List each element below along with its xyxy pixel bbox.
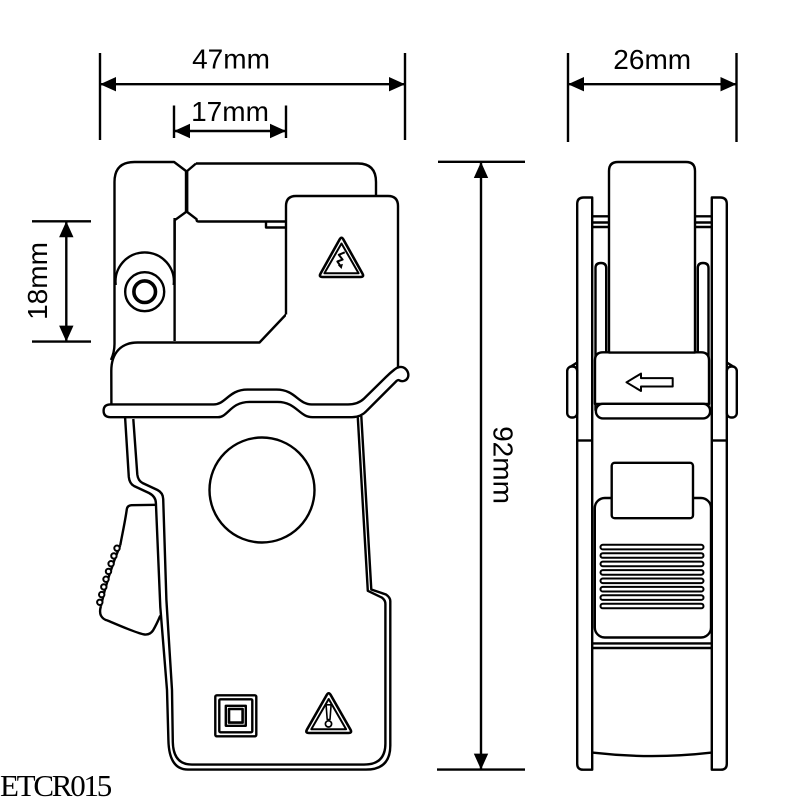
- svg-text:26mm: 26mm: [613, 44, 691, 75]
- svg-text:92mm: 92mm: [488, 426, 519, 504]
- svg-text:17mm: 17mm: [191, 96, 269, 127]
- svg-text:ETCR015: ETCR015: [0, 768, 112, 800]
- svg-text:47mm: 47mm: [192, 44, 270, 75]
- svg-text:18mm: 18mm: [22, 242, 53, 320]
